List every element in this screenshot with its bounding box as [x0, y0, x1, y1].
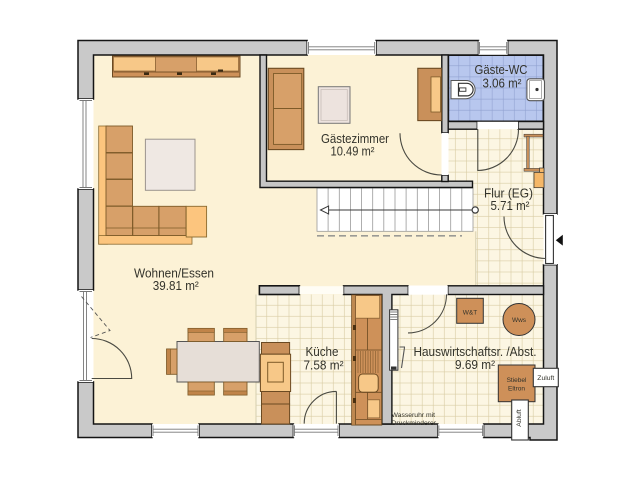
svg-text:Zuluft: Zuluft — [537, 375, 554, 382]
svg-text:W&T: W&T — [463, 310, 477, 317]
svg-text:3.06 m²: 3.06 m² — [483, 76, 523, 91]
svg-text:39.81 m²: 39.81 m² — [153, 278, 200, 293]
svg-text:Wws: Wws — [512, 317, 527, 324]
svg-text:5.71 m²: 5.71 m² — [491, 198, 531, 213]
svg-text:Stiebel: Stiebel — [507, 377, 527, 384]
svg-text:Druckminderer: Druckminderer — [392, 420, 437, 427]
svg-text:10.49 m²: 10.49 m² — [331, 144, 376, 159]
svg-text:Wasseruhr mit: Wasseruhr mit — [392, 412, 436, 419]
svg-text:Eltron: Eltron — [508, 386, 525, 393]
svg-text:9.69 m²: 9.69 m² — [455, 357, 496, 372]
svg-text:Abluft: Abluft — [516, 409, 523, 426]
svg-text:7.58 m²: 7.58 m² — [304, 358, 345, 373]
